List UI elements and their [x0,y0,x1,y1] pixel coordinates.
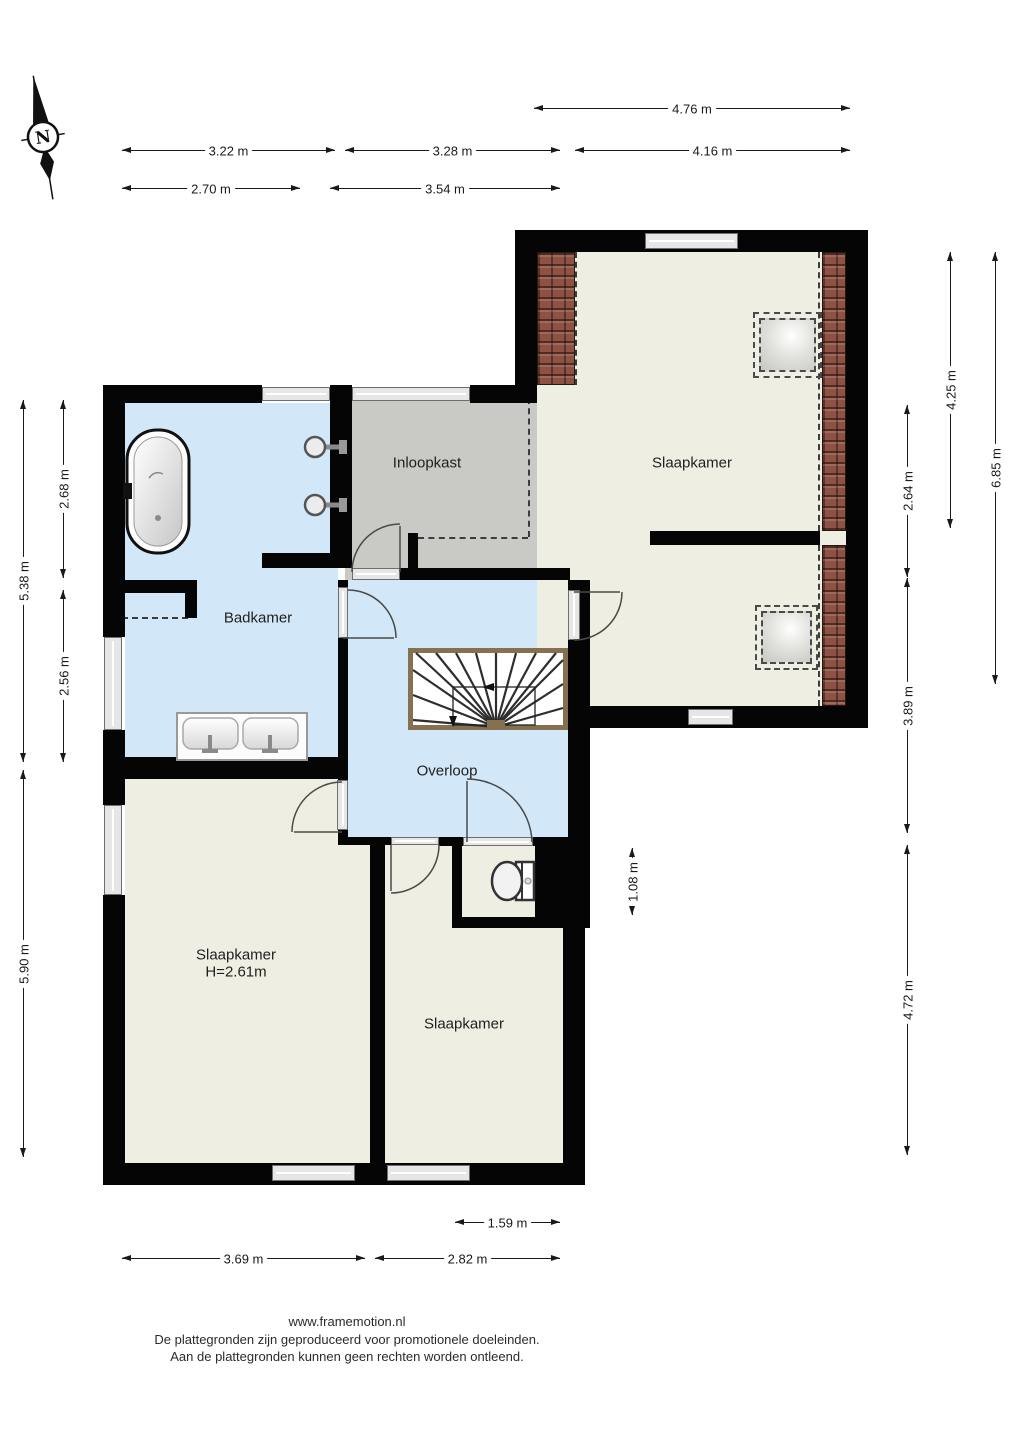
room-label-slaapkamer-bl: Slaapkamer [196,947,276,964]
room-label-badkamer: Badkamer [224,610,292,627]
dimension-bottom: 2.82 m [375,1258,560,1259]
floorplan: N Inloopkast Slaapkamer Badkamer Overloo… [0,0,1018,1440]
dimension-top: 4.76 m [534,108,850,109]
door-threshold [391,837,439,845]
dimension-bottom: 3.69 m [122,1258,365,1259]
door-threshold [463,837,533,846]
wall [400,568,570,580]
wall [122,580,197,593]
wall [103,895,125,1185]
window [272,1165,355,1181]
dimension-left: 2.56 m [63,590,64,762]
footer-disclaimer: www.framemotion.nl De plattegronden zijn… [22,1313,672,1366]
dimension-top: 3.22 m [122,150,335,151]
wall [103,385,262,403]
door-threshold [338,587,348,638]
skylight [753,312,822,378]
skylight [755,605,818,670]
wall [370,837,385,1163]
footer-line3: Aan de plattegronden kunnen geen rechten… [22,1348,672,1366]
roof-tiles-right-upper [822,252,846,531]
window [645,233,738,249]
roofline-dash [818,252,820,531]
dimension-right: 4.72 m [907,845,908,1155]
wall [103,757,348,779]
wall [330,385,352,403]
window [104,805,122,895]
roofline-dash [418,537,528,539]
dimension-top: 4.16 m [575,150,850,151]
window [387,1165,470,1181]
window [104,637,122,730]
room-label-inloopkast: Inloopkast [393,455,461,472]
wall [452,917,545,928]
dimension-left: 5.90 m [23,770,24,1157]
bedroom-bl-floor-strip [348,845,372,1163]
compass-north-label: N [34,127,52,149]
wall [408,533,418,578]
compass-rose: N [12,72,75,202]
wall [103,385,125,637]
wall [846,230,868,728]
dimension-right: 2.64 m [907,405,908,577]
wall [185,593,197,618]
room-label-slaapkamer-br: Slaapkamer [424,1016,504,1033]
wall [535,837,590,928]
window [352,387,470,401]
wall [563,917,585,1185]
window [262,387,330,401]
footer-line2: De plattegronden zijn geproduceerd voor … [22,1331,672,1349]
room-label-slaapkamer-bl-height: H=2.61m [205,964,266,981]
landing-floor [348,580,568,837]
roofline-dash [575,252,577,385]
footer-site: www.framemotion.nl [22,1313,672,1331]
dimension-left: 5.38 m [23,400,24,762]
window [688,709,733,725]
door-threshold [568,590,580,640]
room-label-overloop: Overloop [417,763,478,780]
dimension-toilet: 1.08 m [632,848,633,915]
dimension-right: 3.89 m [907,578,908,833]
dimension-left: 2.68 m [63,400,64,578]
wall [452,845,462,928]
dimension-right: 4.25 m [950,252,951,528]
door-threshold [337,780,348,830]
wall [515,230,537,403]
dimension-top: 3.54 m [330,188,560,189]
kneewall-dash [122,617,188,619]
door-threshold [352,568,400,580]
roof-tiles-right-lower [822,545,846,706]
wall [330,403,352,553]
roof-tiles-left [537,252,575,385]
dimension-top: 2.70 m [122,188,300,189]
roofline-dash [818,545,820,706]
wall [262,553,352,568]
roofline-dash [528,398,530,537]
dimension-top: 3.28 m [345,150,560,151]
dimension-bottom: 1.59 m [455,1222,560,1223]
dimension-right: 6.85 m [995,252,996,684]
wall [650,531,820,545]
room-label-slaapkamer-tr: Slaapkamer [652,455,732,472]
